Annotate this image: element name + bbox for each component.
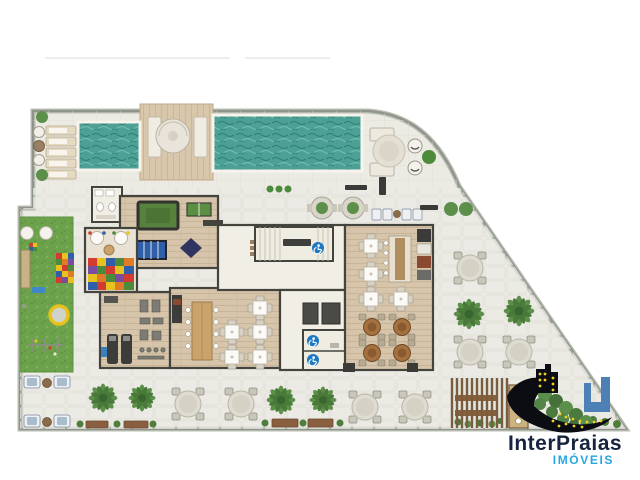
pergola-post [407, 363, 418, 372]
stair-handrail [283, 239, 311, 246]
lobby [218, 225, 345, 290]
blue-bench [32, 287, 45, 293]
playground-lawn [20, 217, 74, 372]
entry-wc-block [92, 187, 122, 222]
craft-table [104, 245, 114, 255]
egg-chair [408, 139, 422, 153]
site-plan-svg: InterPraias IMÓVEIS [0, 0, 640, 480]
floorplan-image: InterPraias IMÓVEIS [0, 0, 640, 480]
accessibility-icon [307, 335, 319, 347]
logo-tagline: IMÓVEIS [553, 452, 614, 467]
egg-chair [408, 161, 422, 175]
gourmet-room [170, 288, 280, 369]
play-mat [88, 258, 134, 290]
main-pool [212, 114, 363, 172]
core-corridor [280, 290, 345, 370]
kids-pool [77, 121, 141, 171]
lounger [194, 117, 207, 157]
elevator [303, 303, 318, 324]
gym [100, 292, 170, 368]
gym-mat [101, 347, 107, 357]
weight-bench [104, 296, 118, 303]
sun-deck [140, 104, 213, 180]
elevator [322, 303, 340, 324]
faint-top-lines [45, 57, 330, 59]
climbing-wall [21, 250, 30, 288]
pergola-post [343, 363, 355, 372]
pool-loungers [46, 126, 76, 179]
wc-sink [330, 343, 339, 348]
logo-name: InterPraias [508, 432, 622, 455]
play-blocks [56, 253, 74, 283]
accessibility-icon [307, 354, 319, 366]
plant [422, 150, 436, 164]
kids-playroom [85, 228, 137, 292]
party-hall [345, 225, 433, 370]
trampoline-ring [50, 306, 68, 324]
billiards-felt [146, 208, 170, 223]
accessibility-icon [312, 242, 324, 254]
